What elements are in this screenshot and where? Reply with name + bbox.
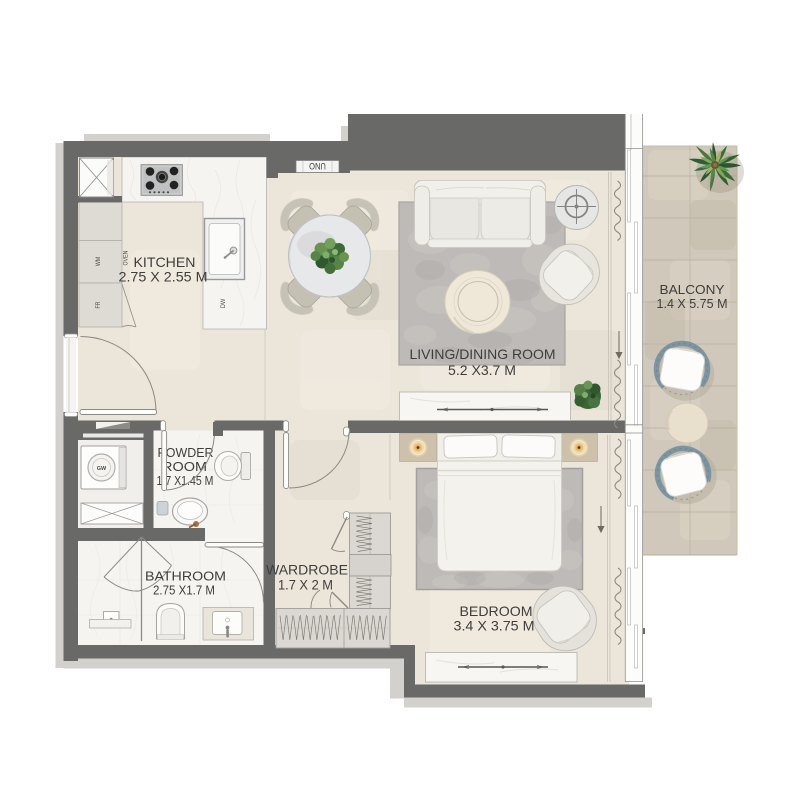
svg-text:1.4 X 5.75 M: 1.4 X 5.75 M bbox=[657, 296, 728, 311]
svg-text:5.2 X3.7 M: 5.2 X3.7 M bbox=[448, 363, 516, 378]
svg-text:GW: GW bbox=[97, 466, 107, 472]
svg-text:FR: FR bbox=[96, 301, 102, 308]
svg-text:OVEN: OVEN bbox=[123, 251, 129, 266]
svg-text:KITCHEN: KITCHEN bbox=[134, 255, 196, 270]
svg-text:1.7 X 2 M: 1.7 X 2 M bbox=[278, 578, 333, 593]
svg-text:WM: WM bbox=[96, 257, 102, 267]
svg-text:WARDROBE: WARDROBE bbox=[266, 563, 348, 578]
svg-text:DW: DW bbox=[220, 299, 228, 309]
svg-text:LIVING/DINING ROOM: LIVING/DINING ROOM bbox=[410, 347, 556, 362]
svg-text:BALCONY: BALCONY bbox=[660, 282, 725, 297]
svg-text:2.75 X1.7 M: 2.75 X1.7 M bbox=[153, 583, 215, 598]
svg-text:UNO: UNO bbox=[309, 161, 326, 172]
svg-text:BEDROOM: BEDROOM bbox=[460, 604, 533, 619]
svg-text:BATHROOM: BATHROOM bbox=[145, 569, 226, 584]
svg-text:3.4 X 3.75 M: 3.4 X 3.75 M bbox=[454, 619, 535, 634]
svg-text:2.75 X 2.55 M: 2.75 X 2.55 M bbox=[119, 270, 208, 285]
